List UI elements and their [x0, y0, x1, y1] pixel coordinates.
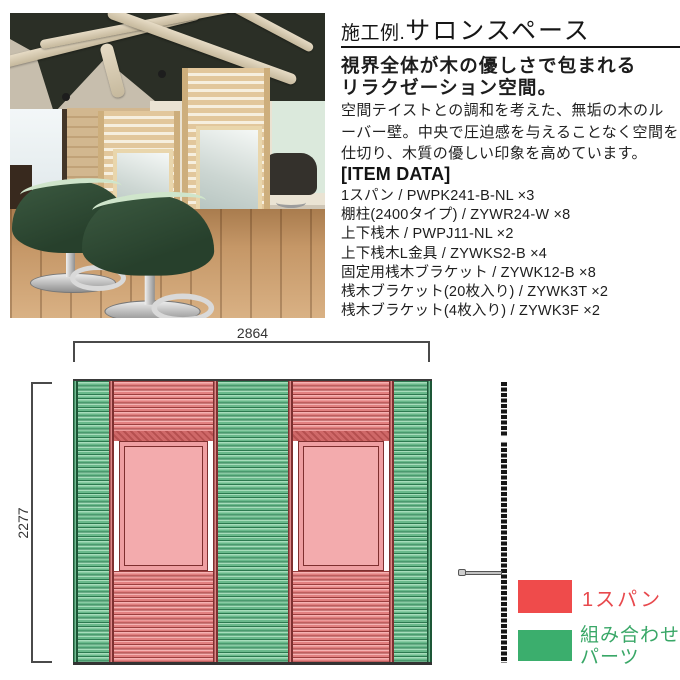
legend-green-label-line1: 組み合わせ: [580, 625, 680, 647]
span-upper-slats: [293, 381, 389, 431]
item-row: 1スパン / PWPK241-B-NL ×3: [341, 187, 608, 206]
bracket-arm: [461, 571, 502, 575]
wall-post-green: [427, 381, 432, 662]
legend-green-label-line2: パーツ: [580, 647, 680, 669]
subtitle: 視界全体が木の優しさで包まれる リラクゼーション空間。: [341, 55, 637, 99]
page-title-main: サロンスペース: [405, 11, 591, 47]
item-row: 桟木ブラケット(20枚入り) / ZYWK3T ×2: [341, 283, 608, 302]
title-divider: [341, 46, 680, 48]
item-row: 上下桟木 / PWPJ11-NL ×2: [341, 225, 608, 244]
span-lower-slats: [293, 571, 389, 662]
bracket-cap: [458, 569, 466, 576]
span-hatch-band: [114, 431, 213, 441]
item-row: 固定用桟木ブラケット / ZYWK12-B ×8: [341, 264, 608, 283]
combo-parts-section: [218, 381, 288, 662]
span-window-opening: [119, 441, 208, 571]
photo-background-chair: [263, 153, 317, 195]
photo-background-chair-base: [276, 197, 306, 208]
span-lower-slats: [114, 571, 213, 662]
shelf-post-detail: [501, 382, 507, 663]
louver-wall-elevation: [73, 379, 432, 665]
item-row: 上下桟木L金具 / ZYWKS2-B ×4: [341, 245, 608, 264]
page-title-prefix: 施工例.: [341, 18, 405, 45]
shelf-post-slot: [501, 437, 507, 441]
height-dimension-label: 2277: [15, 491, 31, 555]
item-data-heading: [ITEM DATA]: [341, 164, 451, 185]
span-window-glass: [303, 446, 379, 566]
subtitle-line2: リラクゼーション空間。: [341, 77, 637, 99]
legend-red-swatch: [518, 580, 572, 613]
width-dimension-line: [73, 341, 430, 362]
item-row: 棚柱(2400タイプ) / ZYWR24-W ×8: [341, 206, 608, 225]
legend-green-label: 組み合わせ パーツ: [580, 625, 680, 669]
span-window-opening: [298, 441, 384, 571]
span-window-glass: [124, 446, 203, 566]
page: 施工例.サロンスペース 視界全体が木の優しさで包まれる リラクゼーション空間。 …: [0, 0, 680, 680]
span-upper-slats: [114, 381, 213, 431]
item-data-list: 1スパン / PWPK241-B-NL ×3 棚柱(2400タイプ) / ZYW…: [341, 187, 608, 321]
item-row: 桟木ブラケット(4枚入り) / ZYWK3F ×2: [341, 302, 608, 321]
photo-spotlight: [62, 93, 70, 101]
one-span-section: [114, 381, 213, 662]
legend-green-swatch: [518, 630, 572, 661]
photo-chair-stem: [145, 271, 155, 305]
combo-parts-section: [78, 381, 109, 662]
subtitle-line1: 視界全体が木の優しさで包まれる: [341, 55, 637, 77]
combo-parts-section: [394, 381, 427, 662]
height-dimension-line: [31, 382, 52, 663]
photo-spotlight: [158, 70, 166, 78]
width-dimension-label: 2864: [73, 325, 432, 341]
one-span-section: [293, 381, 389, 662]
photo-chair-footrest: [151, 294, 214, 318]
description-text: 空間テイストとの調和を考えた、無垢の木のルーバー壁。中央で圧迫感を与えることなく…: [341, 100, 679, 165]
page-title: 施工例.サロンスペース: [341, 11, 591, 47]
span-hatch-band: [293, 431, 389, 441]
legend-red-label: 1スパン: [582, 583, 662, 612]
salon-photo: [10, 13, 325, 318]
